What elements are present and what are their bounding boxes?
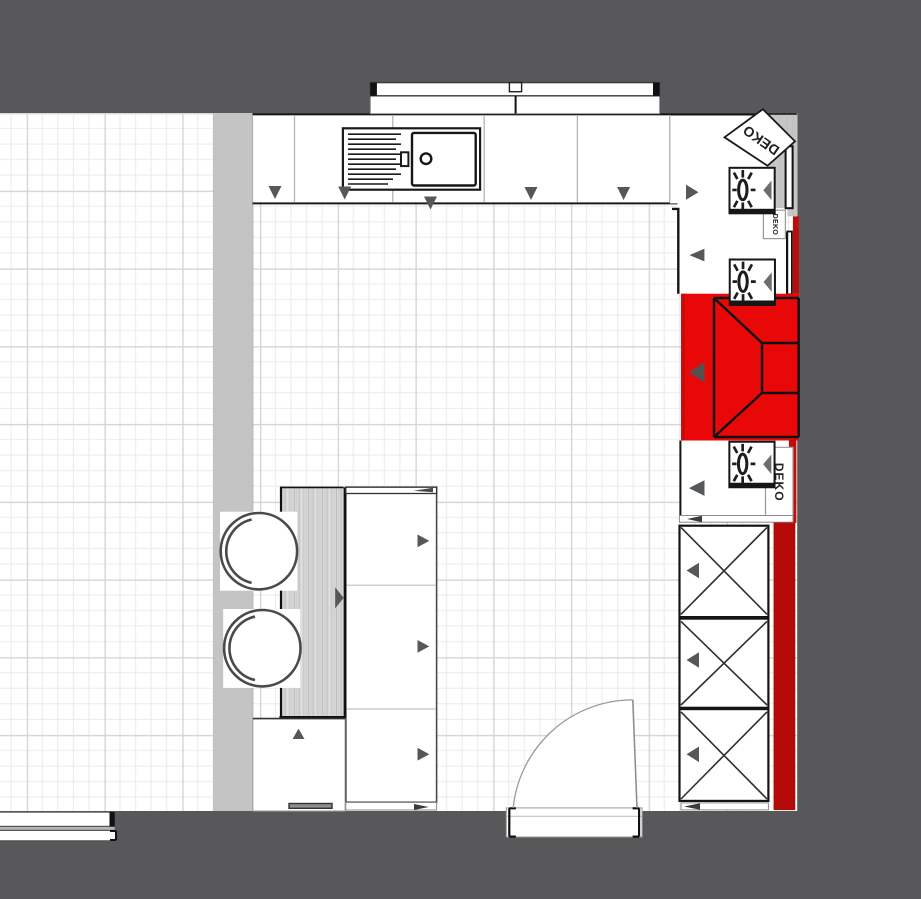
svg-text:DEKO: DEKO	[771, 214, 778, 236]
